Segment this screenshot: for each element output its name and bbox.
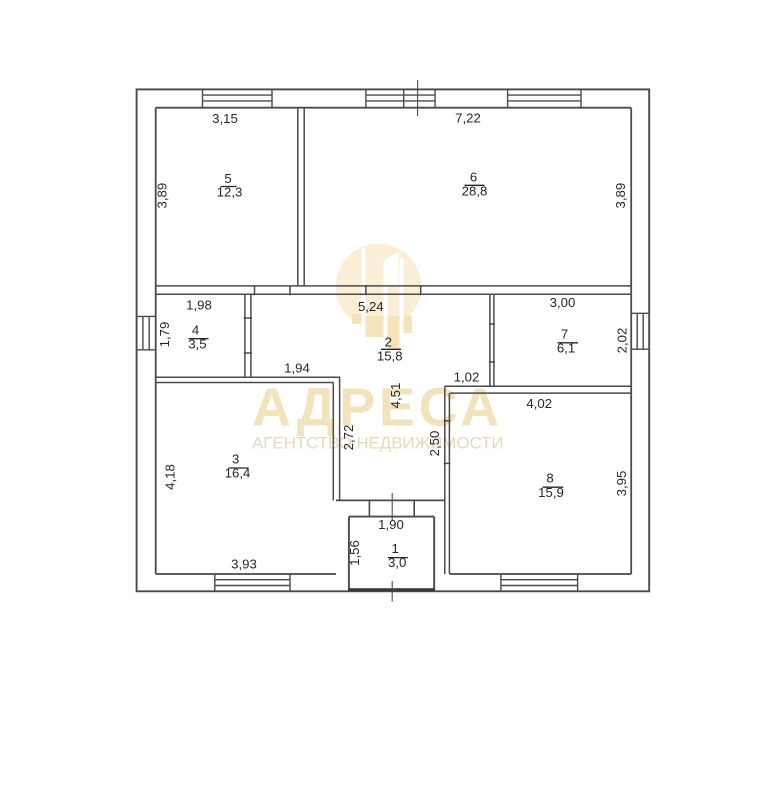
svg-text:28,8: 28,8 (462, 184, 488, 199)
svg-text:7,22: 7,22 (455, 111, 481, 126)
svg-text:1,98: 1,98 (186, 298, 212, 313)
svg-text:3,15: 3,15 (212, 111, 238, 126)
svg-text:1,90: 1,90 (378, 517, 404, 532)
svg-text:8: 8 (546, 471, 553, 486)
svg-text:15,9: 15,9 (538, 485, 564, 500)
svg-text:1,56: 1,56 (347, 540, 362, 566)
svg-text:2: 2 (385, 335, 392, 350)
svg-text:3,89: 3,89 (613, 183, 628, 209)
svg-text:3,89: 3,89 (155, 183, 170, 209)
svg-text:2,02: 2,02 (615, 328, 630, 354)
svg-text:15,8: 15,8 (377, 349, 403, 364)
svg-text:4,51: 4,51 (388, 383, 403, 409)
svg-text:3,0: 3,0 (388, 555, 406, 570)
svg-text:7: 7 (561, 327, 568, 342)
svg-text:1: 1 (392, 541, 399, 556)
svg-text:АГЕНТСТВО НЕДВИЖИМОСТИ: АГЕНТСТВО НЕДВИЖИМОСТИ (252, 434, 503, 453)
svg-text:3,93: 3,93 (231, 557, 257, 572)
svg-text:1,79: 1,79 (157, 322, 172, 348)
svg-text:3,00: 3,00 (550, 295, 576, 310)
svg-text:6,1: 6,1 (557, 340, 575, 355)
svg-text:3,5: 3,5 (188, 337, 206, 352)
svg-text:4,18: 4,18 (163, 464, 178, 490)
svg-text:1,94: 1,94 (284, 361, 310, 376)
svg-text:12,3: 12,3 (217, 185, 243, 200)
svg-text:5,24: 5,24 (358, 299, 384, 314)
svg-text:3: 3 (232, 452, 239, 467)
svg-text:16,4: 16,4 (225, 466, 251, 481)
svg-text:1,02: 1,02 (454, 370, 480, 385)
svg-text:2,72: 2,72 (341, 425, 356, 451)
svg-text:2,50: 2,50 (427, 431, 442, 457)
svg-text:6: 6 (470, 170, 477, 185)
svg-text:4,02: 4,02 (526, 396, 552, 411)
svg-text:3,95: 3,95 (614, 471, 629, 497)
svg-text:4: 4 (192, 322, 199, 337)
